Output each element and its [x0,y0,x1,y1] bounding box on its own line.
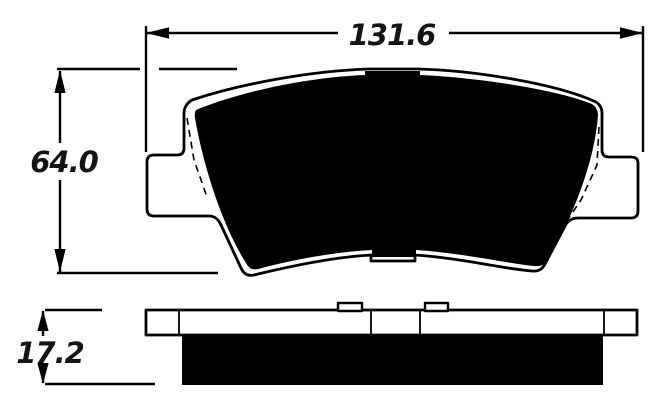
abutment-clip-left [338,303,362,311]
pad-front-view [147,69,638,275]
height-dimension-label: 64.0 [30,145,98,179]
pad-side-view [146,303,637,385]
arrowhead-down-icon [54,249,65,272]
side-friction-material [182,335,603,385]
side-backing-plate [146,310,637,335]
arrowhead-left-icon [146,27,169,39]
arrowhead-right-icon [620,27,643,39]
brake-pad-drawing: 131.6 64.0 [0,0,672,414]
dimension-thickness: 17.2 [16,310,155,384]
arrowhead-thickness-up-icon [37,310,48,331]
abutment-clip-right [425,303,448,311]
thickness-dimension-label: 17.2 [16,336,84,370]
technical-drawing-canvas: 131.6 64.0 [0,0,672,414]
width-dimension-label: 131.6 [349,18,437,52]
arrowhead-up-icon [54,70,65,93]
friction-surface [195,71,598,269]
